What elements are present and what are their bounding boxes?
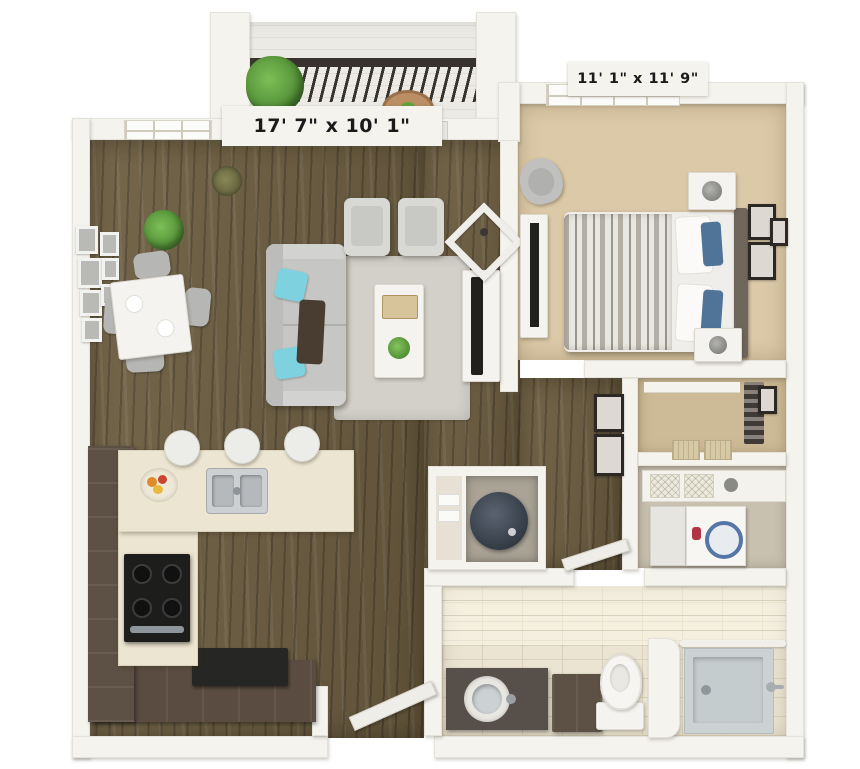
wall-right: [786, 82, 804, 758]
bedroom-wall-art: [770, 218, 788, 246]
water-heater: [470, 492, 528, 550]
burner: [132, 598, 152, 618]
shower-rod: [680, 640, 786, 647]
toilet-bowl: [600, 654, 642, 710]
bedroom-dimensions-label: 11' 1" x 11' 9": [568, 62, 708, 96]
sink-basin-right: [240, 475, 262, 507]
armchair: [398, 198, 444, 256]
place-setting: [155, 318, 175, 338]
burner: [132, 564, 152, 584]
table-lamp: [702, 181, 722, 201]
gallery-photo: [100, 232, 119, 256]
wall-bathroom-left: [424, 586, 442, 736]
wall-bottom-left-segment: [72, 736, 328, 758]
bathroom-tile-wall-band: [442, 586, 786, 646]
wall-join: [498, 82, 520, 142]
wall-bottom-right-segment: [434, 736, 804, 758]
toilet: [596, 654, 642, 730]
dining-table: [110, 274, 193, 360]
water-heater-glint: [508, 528, 516, 536]
closet-basket: [672, 440, 700, 460]
laundry-shelf-item: [724, 478, 738, 492]
toilet-bowl-inner: [610, 664, 630, 692]
wall-bedroom-bottom: [584, 360, 786, 378]
sink-faucet: [233, 487, 241, 495]
sink-faucet: [506, 694, 516, 704]
gallery-photo: [80, 290, 102, 316]
nightstand: [694, 328, 742, 362]
fruit: [158, 475, 167, 484]
fruit-bowl: [140, 468, 178, 502]
bathroom-cabinet: [552, 674, 602, 732]
chair-seat: [525, 165, 557, 199]
closet-wall-item: [758, 386, 777, 414]
armchair-cushion: [405, 206, 437, 246]
sink-basin-left: [212, 475, 234, 507]
wall-bathroom-top-left: [424, 568, 574, 586]
burner: [162, 564, 182, 584]
washer-knob: [692, 527, 701, 540]
gallery-photo: [78, 258, 102, 288]
washer-door: [705, 521, 743, 559]
kitchen-sink: [206, 468, 268, 514]
dining-potted-plant: [144, 210, 184, 250]
fruit: [153, 485, 163, 494]
blue-accent-pillow: [700, 221, 723, 266]
burner: [162, 598, 182, 618]
oven-handle: [130, 626, 184, 633]
bar-stool: [284, 426, 320, 462]
teal-throw-pillow: [273, 267, 309, 303]
gallery-photo: [76, 226, 98, 254]
gallery-photo: [102, 258, 119, 280]
range-stove: [124, 554, 190, 642]
vessel-sink-basin: [472, 684, 502, 714]
corridor-wall-art: [594, 434, 624, 476]
tv-screen: [471, 277, 483, 375]
bar-stool: [164, 430, 200, 466]
utility-shelf-top: [438, 494, 460, 506]
nightstand: [688, 172, 736, 210]
living-dining-dimensions-label: 17' 7" x 10' 1": [222, 106, 442, 146]
shower-arm: [774, 685, 784, 689]
coffee-table-tray: [382, 295, 418, 319]
table-lamp: [709, 336, 727, 354]
kitchen-window: [124, 120, 212, 140]
bedroom-dresser: [520, 214, 548, 338]
wall-living-bedroom: [500, 140, 518, 392]
corridor-wall-art: [594, 394, 624, 432]
dryer: [650, 506, 686, 566]
shower-drain: [701, 685, 711, 695]
floor-plan-rendering: 17' 7" x 10' 1" 11' 1" x 11' 9": [0, 0, 860, 769]
coffee-table: [374, 284, 424, 378]
bedroom-wall-art: [748, 242, 776, 280]
closet-basket: [704, 440, 732, 460]
armchair: [344, 198, 390, 256]
brown-throw-blanket: [296, 299, 325, 364]
credenza-appliance: [192, 648, 288, 686]
wall-wreath: [212, 166, 242, 196]
patterned-duvet: [564, 214, 672, 350]
shower-pan: [684, 648, 774, 734]
bathroom-partition: [648, 638, 680, 738]
laundry-basket: [684, 474, 714, 498]
coffee-table-plant: [388, 337, 410, 359]
bathroom-vanity: [446, 668, 548, 730]
wall-bathroom-top-right: [644, 568, 786, 586]
gallery-photo: [82, 318, 102, 342]
bar-stool: [224, 428, 260, 464]
armchair-cushion: [351, 206, 383, 246]
shower-fixture: [766, 678, 784, 696]
washer: [686, 506, 746, 566]
diamond-decor-center: [478, 226, 489, 237]
sofa: [266, 244, 346, 406]
laundry-basket: [650, 474, 680, 498]
place-setting: [124, 294, 144, 314]
tv-console: [462, 270, 500, 382]
bedroom-tv: [530, 223, 539, 327]
utility-shelf-bottom: [438, 510, 460, 522]
closet-shelf: [644, 382, 740, 393]
